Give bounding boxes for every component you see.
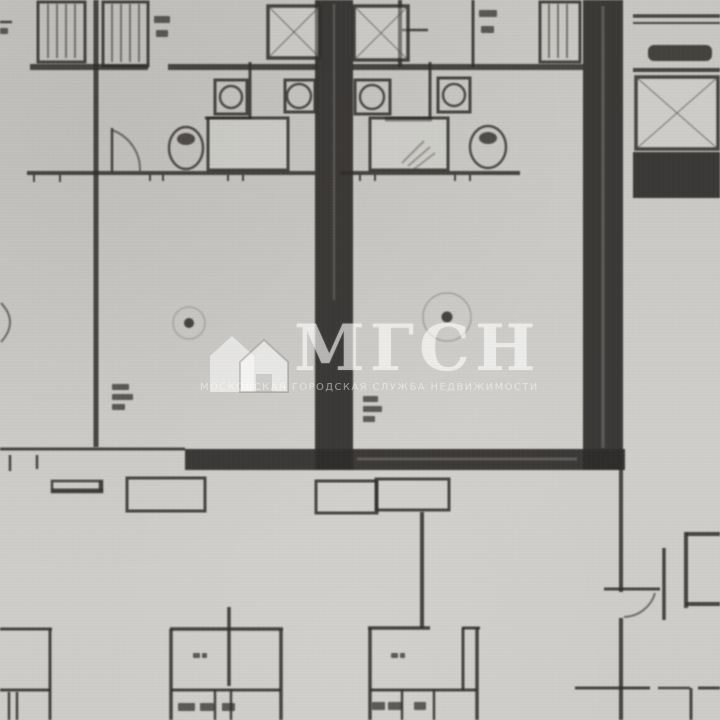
label-mark: [222, 703, 235, 711]
label-mark: [388, 702, 402, 710]
elevator-door-mark: [648, 45, 712, 61]
fixture-box: [540, 2, 580, 62]
sink-bowl: [360, 85, 384, 109]
label-mark: [481, 26, 494, 33]
fixture-box: [376, 479, 449, 510]
label-mark: [154, 16, 170, 23]
wall-thick: [633, 152, 720, 198]
label-mark: [391, 653, 398, 658]
ceiling-dot: [184, 318, 194, 328]
label-mark: [112, 404, 125, 410]
label-mark: [112, 394, 133, 400]
door-swing: [1, 303, 10, 342]
sink-bowl: [443, 84, 465, 106]
label-mark: [193, 653, 200, 658]
label-mark: [156, 30, 168, 37]
label-mark: [363, 406, 382, 412]
fixture-box: [127, 478, 205, 511]
label-mark: [202, 653, 207, 658]
sink-bowl: [220, 86, 242, 108]
label-mark: [0, 28, 8, 34]
toilet-tank-mark: [479, 132, 497, 144]
toilet-tank-mark: [177, 133, 195, 145]
fixture-box: [103, 2, 148, 66]
label-mark: [372, 702, 385, 710]
label-mark: [200, 703, 214, 711]
label-mark: [479, 10, 497, 17]
floorplan-drawing: [0, 0, 720, 720]
door-swing: [624, 593, 655, 617]
bathtub: [370, 118, 448, 170]
fixture-box: [38, 2, 85, 62]
fixture-box: [316, 481, 377, 513]
label-mark: [363, 416, 375, 422]
label-mark: [414, 702, 426, 710]
label-mark: [112, 384, 129, 390]
label-mark: [363, 396, 378, 402]
bathtub: [208, 118, 288, 170]
ceiling-dot: [442, 312, 453, 323]
floorplan-scan: МГСН МОСКОВСКАЯ ГОРОДСКАЯ СЛУЖБА НЕДВИЖИ…: [0, 0, 720, 720]
label-mark: [400, 653, 405, 658]
door-swing: [112, 130, 140, 171]
sink-bowl: [287, 84, 311, 108]
label-mark: [178, 703, 195, 711]
